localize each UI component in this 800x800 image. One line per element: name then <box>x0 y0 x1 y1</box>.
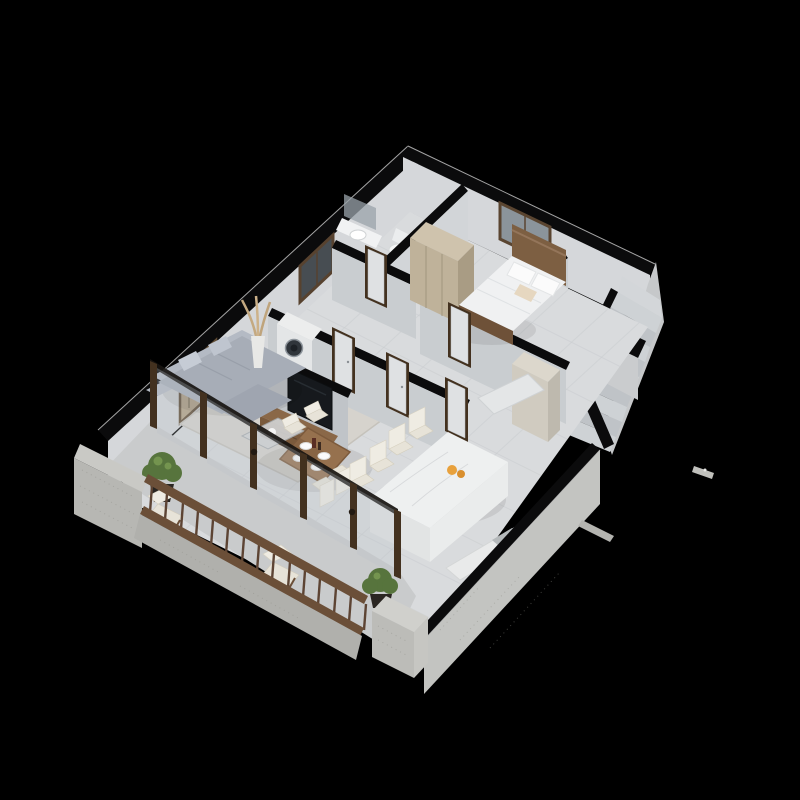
plate <box>300 443 312 450</box>
bathroom-door <box>365 245 387 308</box>
hall-door-2 <box>386 352 409 418</box>
wall-lamp <box>349 509 355 515</box>
floor-plan-render <box>0 0 800 800</box>
bottle <box>318 442 321 450</box>
sink-basin <box>350 230 366 240</box>
plate <box>318 453 330 460</box>
fruit-bowl <box>447 465 457 475</box>
bottle <box>312 438 316 448</box>
floor-plan-svg <box>0 0 800 800</box>
bedroom-door <box>448 302 471 368</box>
stray-dot <box>704 469 707 472</box>
wall-lamp <box>251 449 257 455</box>
